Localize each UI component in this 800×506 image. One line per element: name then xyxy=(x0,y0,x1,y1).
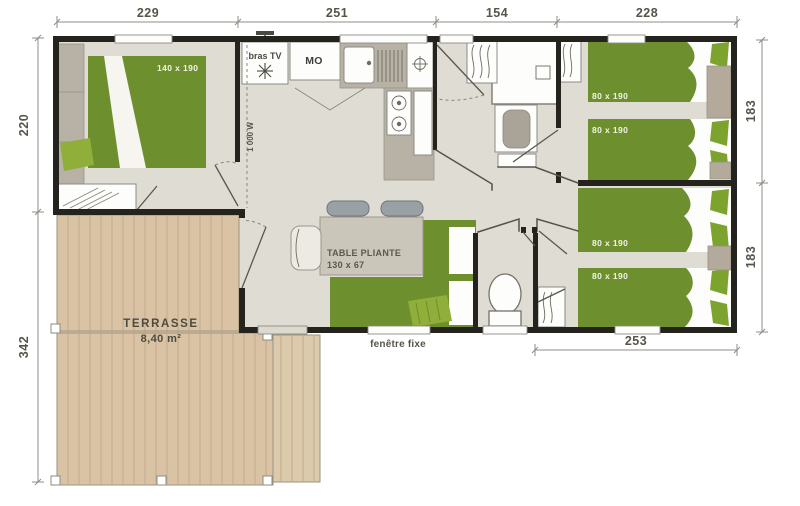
terrace-area-label: 8,40 m² xyxy=(141,333,182,345)
wall-kitchen-bath xyxy=(433,36,437,150)
dim-bottom-1: 253 xyxy=(625,334,647,348)
window xyxy=(115,35,172,43)
wall-wc-right xyxy=(533,233,538,328)
toilet-base xyxy=(489,311,521,326)
terrace-label: TERRASSE xyxy=(123,318,198,330)
nightstand xyxy=(710,162,731,179)
single-bed-size-label: 80 x 190 xyxy=(592,91,628,101)
tall-unit xyxy=(414,91,432,155)
chair xyxy=(327,201,369,216)
fixed-window xyxy=(368,326,430,334)
dim-left-1: 220 xyxy=(17,114,31,136)
faucet-icon xyxy=(367,61,371,65)
single-bed-size-label: 80 x 190 xyxy=(592,125,628,135)
window xyxy=(440,35,473,43)
terrace-post xyxy=(51,476,60,485)
burner-dot xyxy=(397,101,401,105)
master-bed-size-label: 140 x 190 xyxy=(157,63,198,73)
dim-right-1: 183 xyxy=(744,100,758,122)
terrace-door xyxy=(258,326,307,334)
burner-dot xyxy=(397,122,401,126)
terrace-post xyxy=(157,476,166,485)
sofa-cushion xyxy=(449,227,475,274)
window xyxy=(608,35,645,43)
single-bed-size-label: 80 x 190 xyxy=(592,238,628,248)
terrace-landing xyxy=(273,335,320,482)
nightstand xyxy=(708,246,731,270)
shelf-unit xyxy=(58,92,84,142)
wall-bath-bedroom1 xyxy=(556,36,561,128)
washbasin xyxy=(503,110,530,148)
terrace-upper-deck xyxy=(57,215,239,333)
cooktop xyxy=(387,91,411,135)
window xyxy=(615,326,660,334)
tv-label: bras TV xyxy=(248,51,281,61)
wall-master-divider xyxy=(235,36,240,162)
sofa-cushion xyxy=(449,281,475,325)
terrace-lower-deck xyxy=(57,333,273,485)
vanity-shelf xyxy=(498,154,536,167)
dim-left-2: 342 xyxy=(17,336,31,358)
fixed-window-label: fenêtre fixe xyxy=(370,339,426,350)
window xyxy=(340,35,427,43)
shelf-unit xyxy=(58,44,84,92)
wall-wc-left xyxy=(473,233,478,328)
wall-right xyxy=(731,36,737,333)
single-bed-size-label: 80 x 190 xyxy=(592,271,628,281)
wardrobe xyxy=(467,40,497,83)
dim-right-2: 183 xyxy=(744,246,758,268)
dim-top-2: 251 xyxy=(326,6,348,20)
dim-top-3: 154 xyxy=(486,6,508,20)
drainer-lines xyxy=(378,50,402,82)
nightstand xyxy=(707,66,731,118)
table-size-label: 130 x 67 xyxy=(327,260,364,270)
chair xyxy=(381,201,423,216)
wall-bath-bedroom1 xyxy=(556,172,561,183)
wall-living-left xyxy=(239,288,245,333)
toilet-bowl xyxy=(489,274,521,314)
dim-top-1: 229 xyxy=(137,6,159,20)
snowflake-icon xyxy=(257,63,273,79)
shower-stall xyxy=(492,41,557,104)
table-label: TABLE PLIANTE xyxy=(327,248,401,258)
door-jamb xyxy=(532,227,537,233)
wall-left xyxy=(53,36,59,215)
wall-living-left xyxy=(239,209,245,218)
floor-plan: TERRASSE 8,40 m² 140 x 190 bras TV MO xyxy=(0,0,800,506)
floor-plan-page: TERRASSE 8,40 m² 140 x 190 bras TV MO xyxy=(0,0,800,506)
dim-top-4: 228 xyxy=(636,6,658,20)
window xyxy=(483,326,527,334)
wc xyxy=(489,274,521,326)
terrace-post xyxy=(51,324,60,333)
terrace-post xyxy=(263,476,272,485)
wardrobe xyxy=(559,40,581,82)
wall-master-bottom xyxy=(53,209,245,215)
bench xyxy=(291,226,321,270)
wall-bedrooms-divider xyxy=(578,180,731,186)
microwave-label: MO xyxy=(305,55,323,67)
tv-bracket-icon xyxy=(256,31,274,35)
heater-label: 1 000 W xyxy=(246,122,255,152)
